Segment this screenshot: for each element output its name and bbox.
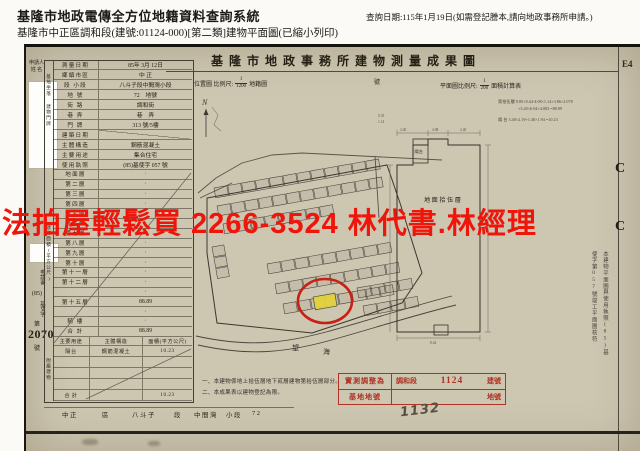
stamp-row-1: 實測調整為 調和段 1124 建號 xyxy=(339,374,505,389)
footer-segment: 小段 xyxy=(226,410,242,419)
document-subtitle: 基隆市中正區調和段(建號:01124-000)[第二類]建物平面圖(已縮小列印) xyxy=(17,25,338,40)
system-title: 基隆市地政電傳全方位地籍資料查詢系統 xyxy=(17,6,260,25)
svg-text:1.14: 1.14 xyxy=(378,120,384,124)
orientation-mark-icon: C xyxy=(615,161,625,177)
footer-segment: 中正 xyxy=(62,410,78,419)
north-arrow: N xyxy=(201,98,209,137)
svg-text:2.40: 2.40 xyxy=(460,128,466,132)
survey-adjustment-stamp: 實測調整為 調和段 1124 建號 基地地號 地號 xyxy=(338,373,506,405)
auction-ad-watermark: 法拍屋輕鬆買 2266-3524 林代書.林經理 xyxy=(2,200,640,242)
svg-text:2.40: 2.40 xyxy=(400,128,406,132)
balcony-label: 陽台 xyxy=(415,148,423,155)
stamp-number: 1124 xyxy=(441,376,463,386)
stamp-section: 調和段 xyxy=(396,376,417,386)
road-label-2: 海 xyxy=(323,347,330,356)
stamp-row1-label: 實測調整為 xyxy=(339,374,392,389)
svg-text:8.44: 8.44 xyxy=(430,341,436,345)
highlighted-parcel xyxy=(313,293,337,310)
note-line-1: 一、本建物係地上拾伍層地下貳層建物第拾伍層部分。 xyxy=(202,377,344,388)
stamp-unit-2: 地號 xyxy=(487,392,501,402)
area-calculations: 第拾伍層 8.85×8.44-4.08×1.14+3.86×2.078 +3.2… xyxy=(498,98,573,123)
svg-text:4.08: 4.08 xyxy=(432,128,438,132)
footer-segment: 段 xyxy=(174,410,182,419)
footer-top-line xyxy=(44,407,294,408)
faint-stamp-smudge xyxy=(82,439,98,445)
stamp-row2-label: 基地地號 xyxy=(339,390,392,405)
footer-segment: 區 xyxy=(102,410,110,419)
note-line-2: 二、本成果表以建物登記為限。 xyxy=(202,388,344,399)
query-date: 查詢日期:115年1月19日(如需登記謄本,請向地政事務所申請。) xyxy=(366,11,593,23)
svg-text:第拾伍層 8.85×8.44-4.08×1.14+3.86: 第拾伍層 8.85×8.44-4.08×1.14+3.86×2.078 xyxy=(498,98,573,105)
svg-text:N: N xyxy=(201,98,208,107)
notes: 一、本建物係地上拾伍層地下貳層建物第拾伍層部分。 二、本成果表以建物登記為限。 xyxy=(202,377,344,398)
faint-stamp-smudge xyxy=(148,441,160,446)
scanned-survey-document: 基隆市地政事務所建物測量成果圖 E4 位置圖 比例尺: 11200 地籍圖 號 … xyxy=(24,44,640,451)
footer-segment: 72 xyxy=(252,410,262,417)
svg-text:+3.20×6.04+4.083 =88.89: +3.20×6.04+4.083 =88.89 xyxy=(518,106,562,111)
footer-segment: 八斗子 xyxy=(132,410,156,419)
road-label-1: 望 xyxy=(292,343,299,352)
document-bottom-rule xyxy=(26,431,640,434)
footer-row: 中正區八斗子段中間灣小段72 xyxy=(26,410,640,424)
svg-text:0.35: 0.35 xyxy=(378,114,384,118)
side-vertical-note: 本建物平面圖與使用執照(85)基使字第057號竣工平面圖核符 xyxy=(564,251,610,359)
stamp-unit: 建號 xyxy=(487,376,501,386)
svg-text:陽 台 3.40×2.19+1.40×1.94 =10.2: 陽 台 3.40×2.19+1.40×1.94 =10.23 xyxy=(498,116,558,123)
page: { "header": { "system_title": "基隆市地政電傳全方… xyxy=(0,0,640,448)
footer-segment: 中間灣 xyxy=(194,410,218,419)
